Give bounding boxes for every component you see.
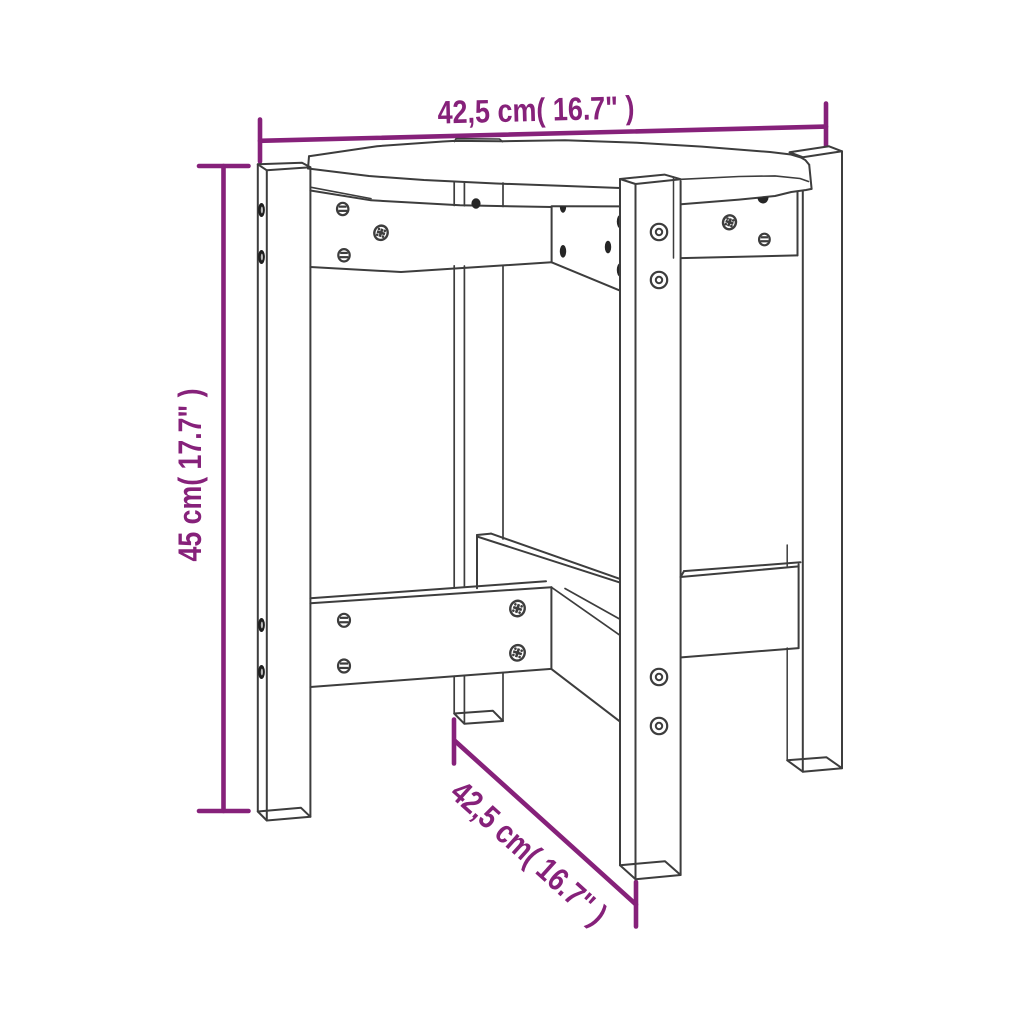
- svg-text:42,5 cm( 16.7" ): 42,5 cm( 16.7" ): [437, 89, 635, 130]
- svg-text:45 cm( 17.7" ): 45 cm( 17.7" ): [172, 389, 208, 562]
